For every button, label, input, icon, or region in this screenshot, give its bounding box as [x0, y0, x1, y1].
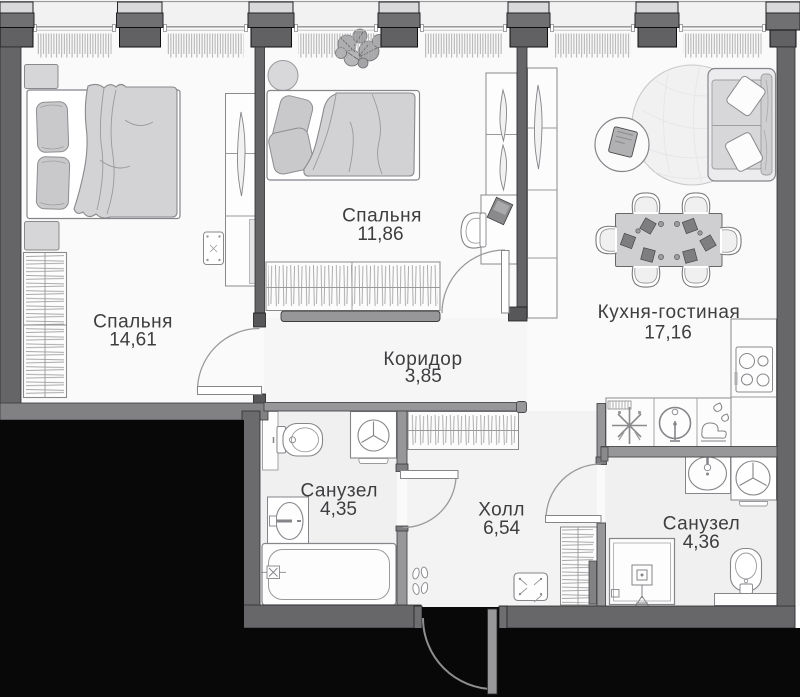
svg-text:14,61: 14,61: [109, 330, 157, 351]
svg-text:6,54: 6,54: [483, 518, 520, 539]
svg-text:17,16: 17,16: [644, 323, 692, 344]
svg-text:4,36: 4,36: [683, 532, 720, 553]
svg-text:11,86: 11,86: [357, 224, 403, 245]
svg-text:3,85: 3,85: [405, 366, 442, 387]
svg-text:4,35: 4,35: [320, 499, 357, 520]
svg-text:Кухня-гостиная: Кухня-гостиная: [598, 302, 741, 323]
